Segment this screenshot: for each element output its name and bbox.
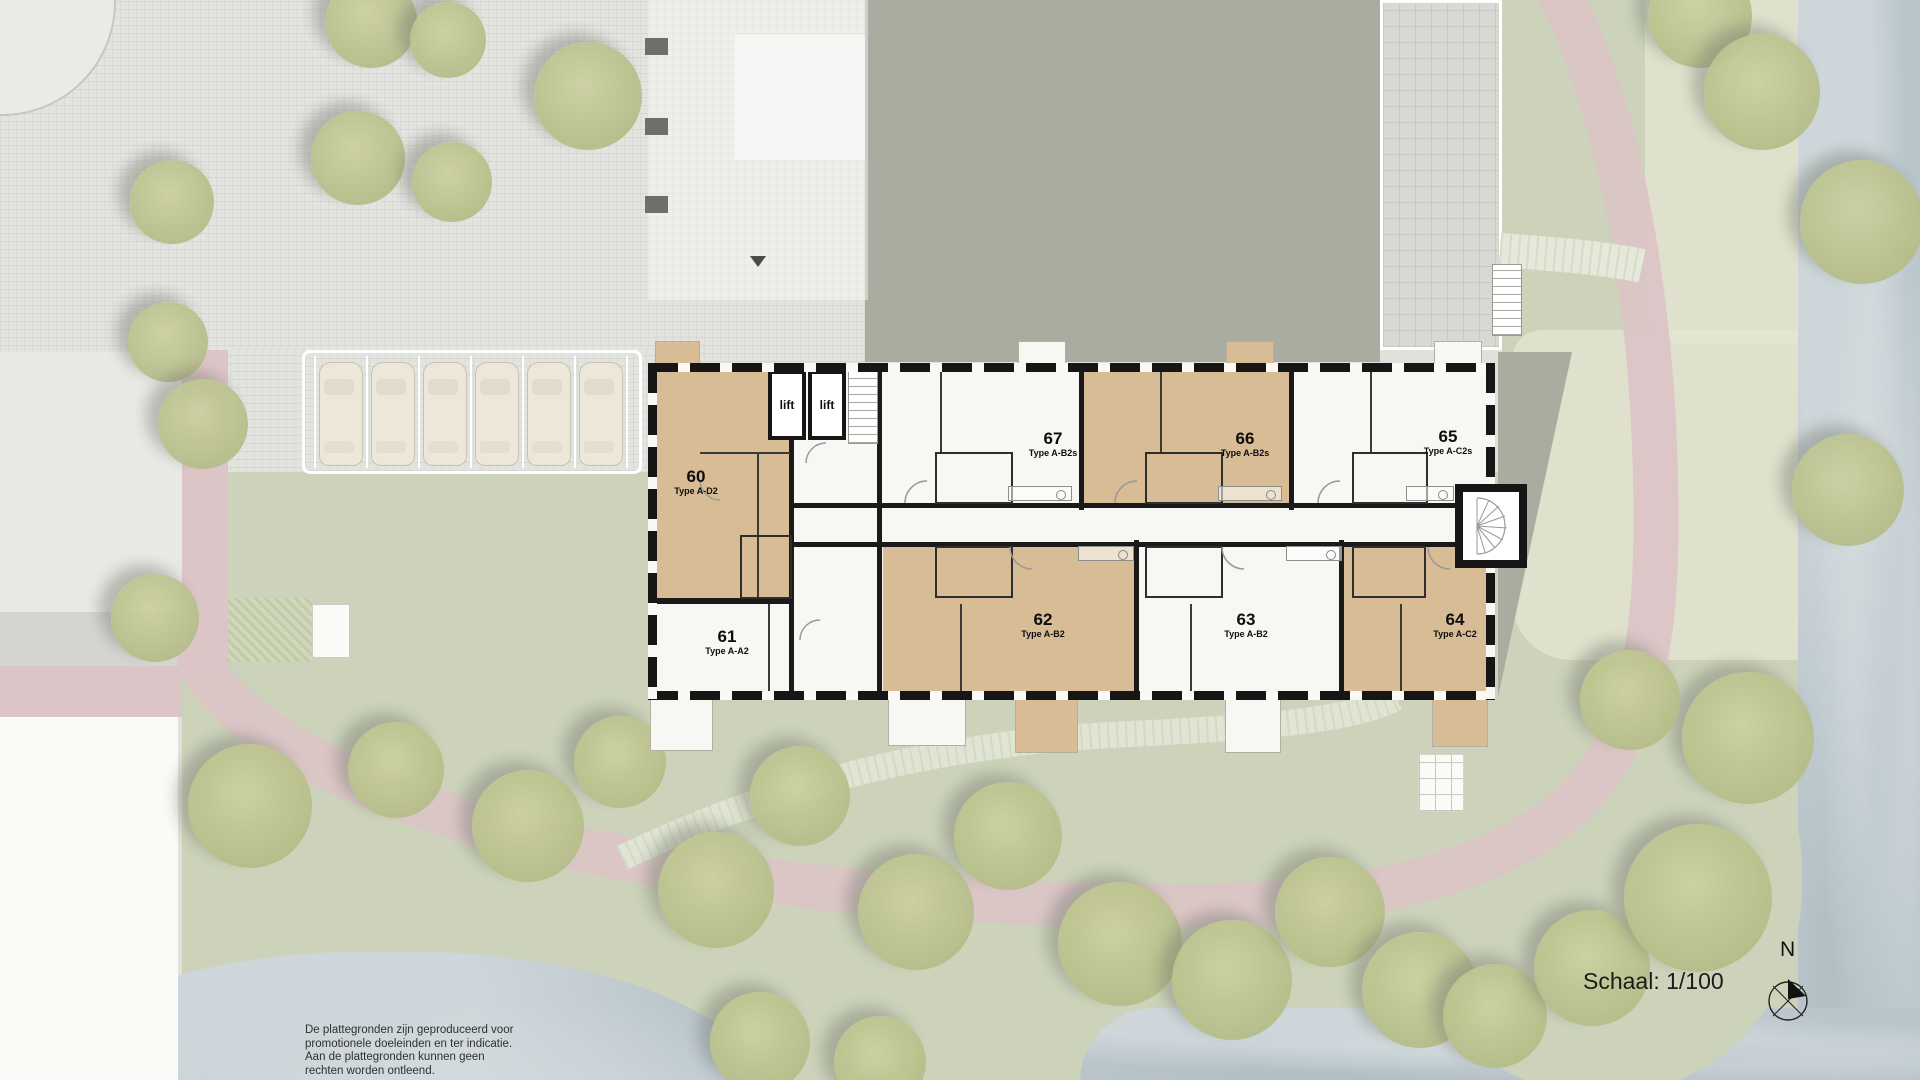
door-arc-layer xyxy=(0,0,1920,1080)
north-label: N xyxy=(1780,938,1795,962)
door-arc xyxy=(1115,481,1137,503)
door-arc xyxy=(1222,547,1244,569)
door-arc xyxy=(1318,481,1340,503)
door-arc xyxy=(800,620,820,640)
door-arc xyxy=(1428,547,1450,569)
unit-66-label: 66 Type A-B2s xyxy=(1190,430,1300,459)
site-plan-canvas: lift lift 60 Type A-D2 61 xyxy=(0,0,1920,1080)
unit-61-label: 61 Type A-A2 xyxy=(672,628,782,657)
unit-62-label: 62 Type A-B2 xyxy=(988,611,1098,640)
unit-60-label: 60 Type A-D2 xyxy=(641,468,751,497)
door-arc xyxy=(806,443,826,463)
unit-63-label: 63 Type A-B2 xyxy=(1191,611,1301,640)
unit-67-label: 67 Type A-B2s xyxy=(998,430,1108,459)
unit-65-label: 65 Type A-C2s xyxy=(1393,428,1503,457)
door-arc xyxy=(905,481,927,503)
unit-64-label: 64 Type A-C2 xyxy=(1400,611,1510,640)
door-arc xyxy=(1010,547,1032,569)
scale-label: Schaal: 1/100 xyxy=(1583,968,1724,995)
north-compass-icon xyxy=(1760,972,1818,1030)
entrance-marker-icon xyxy=(750,256,766,267)
disclaimer-text: De plattegronden zijn geproduceerd voor … xyxy=(305,1024,513,1078)
